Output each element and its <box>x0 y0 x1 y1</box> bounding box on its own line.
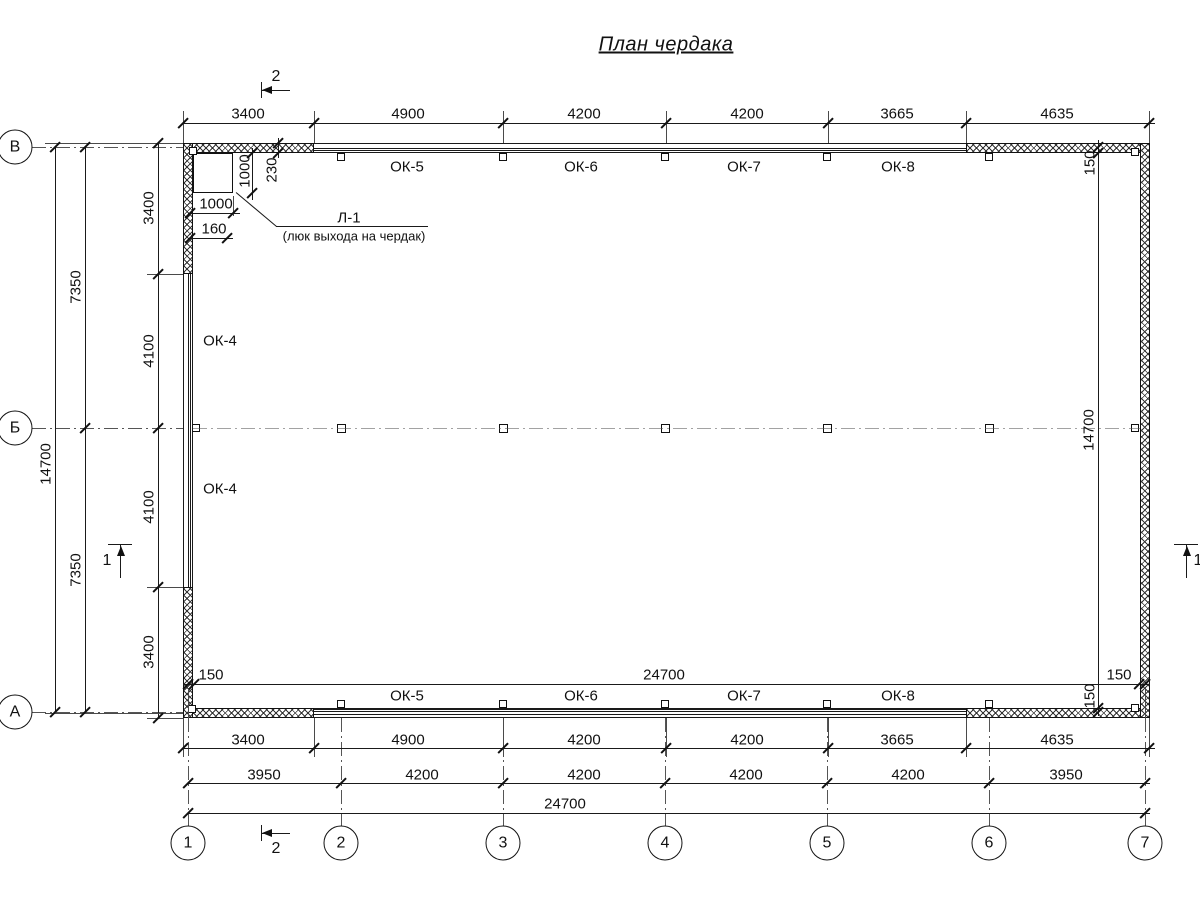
dim-label: 4200 <box>729 768 762 783</box>
dim-label: 150 <box>1106 668 1131 683</box>
axis-bubble-row: В <box>0 130 33 165</box>
dim-label: 7350 <box>69 553 84 586</box>
window-band-bottom-line <box>314 714 966 715</box>
axis-bubble-col: 7 <box>1128 826 1163 861</box>
section-arrow-icon <box>117 546 125 556</box>
extension-line <box>966 111 967 143</box>
extension-line <box>503 111 504 143</box>
axis-bubble-row: А <box>0 695 33 730</box>
axis-label: В <box>10 138 21 156</box>
extension-line <box>666 111 667 143</box>
window-label-left: ОК-4 <box>203 334 237 349</box>
dim-line-left-mid <box>85 147 86 712</box>
extension-line <box>966 718 967 757</box>
pilaster <box>823 700 831 708</box>
dim-line-left-total <box>55 147 56 712</box>
dim-label: 4200 <box>567 768 600 783</box>
dim-line-top <box>183 123 1155 124</box>
dim-label: 4200 <box>405 768 438 783</box>
dim-hatch-width: 1000 <box>199 197 232 212</box>
extension-line <box>1149 111 1150 143</box>
axis-bubble-col: 4 <box>648 826 683 861</box>
dim-line-inner-right <box>1098 140 1099 716</box>
dim-label: 3950 <box>247 768 280 783</box>
extension-line <box>314 718 315 757</box>
dim-label: 3665 <box>880 733 913 748</box>
extension-line <box>828 111 829 143</box>
window-label-bottom: ОК-6 <box>564 689 598 704</box>
extension-line <box>147 718 183 719</box>
dim-label: 3950 <box>1049 768 1082 783</box>
window-band-bottom-line <box>314 711 966 712</box>
axis-label: 4 <box>661 834 670 852</box>
pilaster <box>188 705 196 713</box>
axis-label: 1 <box>184 834 193 852</box>
pilaster <box>337 700 345 708</box>
axis-label: 2 <box>337 834 346 852</box>
wall-top-left <box>183 143 314 153</box>
window-band-bottom-line <box>314 717 966 718</box>
axis-line-row <box>193 428 1140 429</box>
extension-line <box>1149 718 1150 757</box>
window-label-bottom: ОК-7 <box>727 689 761 704</box>
window-label-top: ОК-7 <box>727 160 761 175</box>
pilaster <box>823 153 831 161</box>
extension-line <box>147 274 183 275</box>
pilaster <box>1131 704 1139 712</box>
dim-line-bottom-piers <box>183 748 1155 749</box>
pilaster <box>189 147 197 155</box>
dim-label: 4200 <box>730 733 763 748</box>
dim-label: 4100 <box>142 334 157 367</box>
dim-label: 4200 <box>891 768 924 783</box>
section-number: 1 <box>103 552 112 570</box>
extension-line <box>183 718 184 757</box>
axis-bubble-col: 1 <box>171 826 206 861</box>
dim-label: 4200 <box>567 733 600 748</box>
wall-top-right <box>966 143 1150 153</box>
axis-label: Б <box>10 419 21 437</box>
extension-line <box>183 111 184 143</box>
dim-label: 3665 <box>880 107 913 122</box>
pilaster <box>661 153 669 161</box>
extension-line <box>45 143 183 144</box>
attic-plan-drawing: План чердака Л-1 (люк выхода на чердак) … <box>0 0 1200 900</box>
dim-label: 150 <box>1083 683 1098 708</box>
axis-label: 5 <box>823 834 832 852</box>
dim-label: 4635 <box>1040 733 1073 748</box>
axis-bubble-col: 2 <box>324 826 359 861</box>
hatch-description-label: (люк выхода на чердак) <box>283 230 426 243</box>
pilaster <box>337 153 345 161</box>
pilaster <box>985 153 993 161</box>
axis-bubble-row: Б <box>0 411 33 446</box>
dim-label: 3400 <box>231 107 264 122</box>
roof-hatch-square <box>193 153 233 193</box>
dim-label: 3400 <box>142 635 157 668</box>
dim-label-total: 14700 <box>39 443 54 485</box>
extension-line <box>188 688 189 718</box>
leader-line <box>236 192 277 227</box>
extension-line <box>147 587 183 588</box>
section-number: 2 <box>272 840 281 858</box>
dim-label: 4200 <box>730 107 763 122</box>
window-label-bottom: ОК-8 <box>881 689 915 704</box>
dim-label: 150 <box>198 668 223 683</box>
dim-label-total: 24700 <box>544 797 586 812</box>
window-label-top: ОК-8 <box>881 160 915 175</box>
axis-label: 3 <box>499 834 508 852</box>
axis-label: А <box>10 703 21 721</box>
pilaster <box>661 700 669 708</box>
wall-bottom-left <box>183 708 314 718</box>
axis-bubble-col: 3 <box>486 826 521 861</box>
dim-hatch-edge: 160 <box>201 222 226 237</box>
axis-bubble-col: 5 <box>810 826 845 861</box>
extension-line <box>666 718 667 757</box>
window-label-bottom: ОК-5 <box>390 689 424 704</box>
extension-line <box>503 718 504 757</box>
dim-label: 150 <box>1083 150 1098 175</box>
window-band-top-line <box>314 152 966 154</box>
extension-line <box>314 111 315 143</box>
dim-label: 4900 <box>391 733 424 748</box>
wall-right <box>1140 143 1150 718</box>
section-arrow-icon <box>262 86 272 94</box>
dim-label: 7350 <box>69 270 84 303</box>
extension-line <box>828 718 829 757</box>
window-band-top-line <box>314 143 966 144</box>
pilaster <box>1131 148 1139 156</box>
dim-label: 4100 <box>142 490 157 523</box>
section-arrow-icon <box>1183 546 1191 556</box>
pilaster <box>499 153 507 161</box>
pilaster <box>499 700 507 708</box>
window-band-left-line <box>188 274 189 587</box>
dim-hatch-height: 1000 <box>238 154 253 187</box>
window-label-top: ОК-6 <box>564 160 598 175</box>
pilaster <box>985 700 993 708</box>
dim-label: 14700 <box>1082 409 1097 451</box>
axis-line-col <box>341 718 342 826</box>
axis-bubble-col: 6 <box>972 826 1007 861</box>
drawing-title: План чердака <box>599 34 734 57</box>
dim-line-inner-bottom <box>183 684 1150 685</box>
section-number: 1 <box>1194 552 1200 570</box>
window-label-top: ОК-5 <box>390 160 424 175</box>
section-arrow-icon <box>262 829 272 837</box>
extension-line <box>1145 688 1146 718</box>
dim-label: 3400 <box>142 191 157 224</box>
window-band-top-line <box>314 148 966 149</box>
wall-bottom-right <box>966 708 1150 718</box>
window-label-left: ОК-4 <box>203 482 237 497</box>
dim-label: 24700 <box>643 668 685 683</box>
hatch-code-label: Л-1 <box>337 211 360 226</box>
dim-label: 4200 <box>567 107 600 122</box>
dim-label: 4635 <box>1040 107 1073 122</box>
dim-label: 3400 <box>231 733 264 748</box>
dim-line-bottom-total <box>188 813 1150 814</box>
window-band-left-line <box>183 274 184 587</box>
dim-line-left-inner <box>158 143 159 718</box>
dim-label: 4900 <box>391 107 424 122</box>
dim-hatch-offset: 230 <box>265 157 280 182</box>
section-number: 2 <box>272 68 281 86</box>
axis-line-col <box>989 718 990 826</box>
dim-line-bottom-axes <box>188 783 1150 784</box>
axis-label: 7 <box>1141 834 1150 852</box>
axis-label: 6 <box>985 834 994 852</box>
window-band-bottom-line <box>314 708 966 710</box>
